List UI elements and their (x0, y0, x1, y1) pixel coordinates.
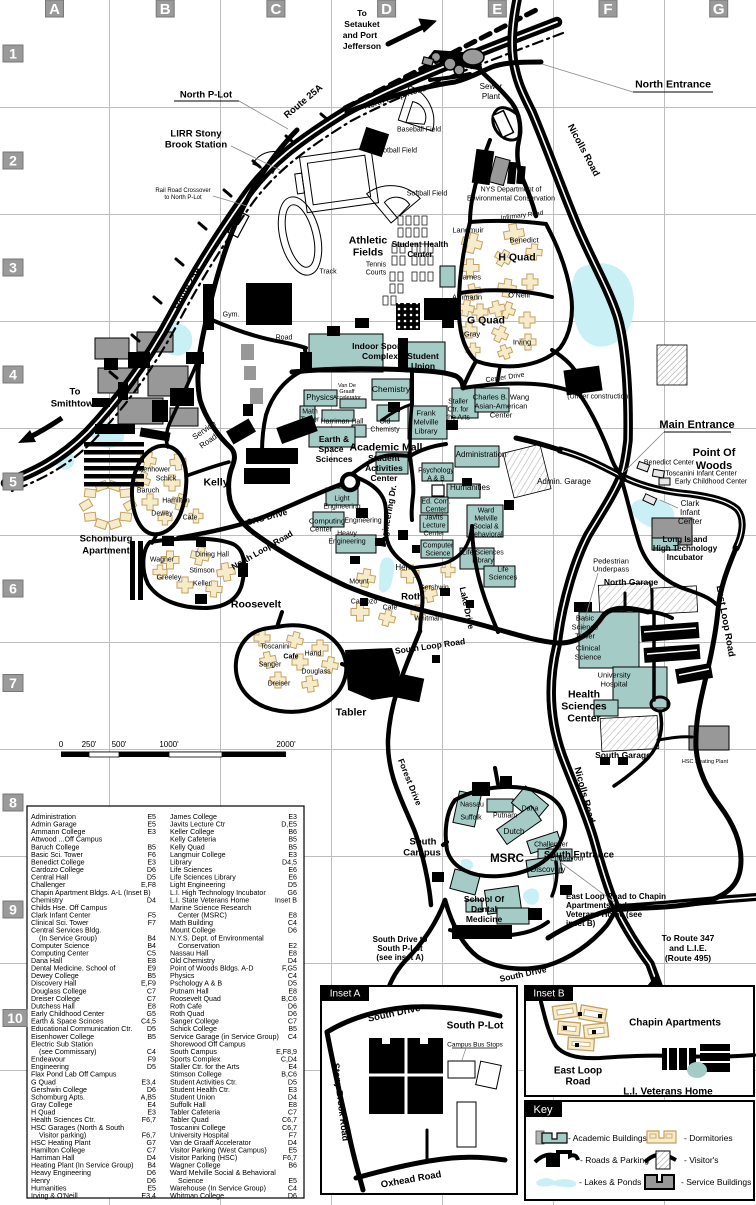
svg-text:Javits: Javits (425, 515, 443, 522)
svg-text:Cafe: Cafe (383, 605, 398, 612)
svg-text:Student: Student (407, 351, 439, 361)
svg-text:North P-Lot: North P-Lot (180, 89, 233, 100)
svg-text:- Dormitories: - Dormitories (684, 1133, 733, 1143)
svg-text:- Academic Buildings: - Academic Buildings (568, 1133, 647, 1143)
svg-text:Fields: Fields (353, 247, 384, 259)
svg-text:Ed. Com.: Ed. Com. (421, 498, 450, 505)
svg-text:Dutch: Dutch (504, 827, 525, 836)
svg-text:To: To (357, 8, 367, 18)
svg-text:E: E (492, 1, 502, 18)
svg-text:Courts: Courts (366, 269, 387, 276)
svg-text:D5: D5 (147, 1063, 156, 1071)
svg-text:Stimson: Stimson (189, 568, 214, 575)
svg-text:Douglass: Douglass (301, 669, 331, 676)
svg-text:Hamilton: Hamilton (162, 497, 190, 504)
svg-text:Light: Light (334, 495, 349, 502)
svg-text:Keller: Keller (193, 581, 212, 588)
svg-text:Langmuir: Langmuir (452, 226, 484, 235)
svg-text:Hospital: Hospital (600, 680, 627, 689)
svg-text:South P-Lot: South P-Lot (447, 1021, 504, 1032)
svg-text:Campus: Campus (403, 847, 440, 858)
svg-text:Plant: Plant (482, 92, 501, 101)
svg-text:O'Neill: O'Neill (508, 291, 530, 300)
svg-text:Mount: Mount (349, 579, 369, 586)
svg-text:Life Sciences: Life Sciences (462, 550, 504, 557)
svg-text:the Arts: the Arts (446, 414, 470, 421)
svg-text:Road: Road (566, 1077, 591, 1088)
svg-text:Tower: Tower (575, 632, 596, 641)
svg-text:Dental: Dental (471, 904, 497, 914)
svg-text:2: 2 (9, 153, 17, 169)
svg-text:B5: B5 (147, 1033, 156, 1041)
svg-text:- Service Buildings: - Service Buildings (681, 1177, 751, 1187)
svg-text:Veterans Home (see: Veterans Home (see (566, 910, 643, 919)
svg-text:LIRR Stony: LIRR Stony (170, 128, 222, 139)
svg-text:Dana: Dana (522, 806, 539, 813)
svg-text:Center: Center (425, 506, 447, 513)
svg-text:Gray: Gray (464, 330, 481, 339)
svg-text:East Loop: East Loop (554, 1066, 602, 1077)
svg-text:5: 5 (9, 474, 17, 490)
svg-text:Student Health: Student Health (392, 240, 449, 249)
svg-text:Life: Life (497, 567, 508, 574)
svg-text:Health: Health (568, 689, 600, 701)
svg-text:Tower: Tower (301, 416, 320, 423)
svg-text:Kelly: Kelly (203, 477, 228, 489)
svg-text:NYS Department of: NYS Department of (481, 186, 542, 193)
svg-text:250': 250' (82, 740, 97, 749)
svg-text:Tabler: Tabler (336, 707, 367, 719)
svg-text:Clinical: Clinical (576, 644, 601, 653)
svg-text:South Entrance: South Entrance (544, 849, 614, 860)
svg-text:inset B): inset B) (566, 919, 596, 928)
svg-text:Setauket: Setauket (344, 19, 380, 29)
svg-text:Football Field: Football Field (375, 147, 417, 154)
svg-text:Gym.: Gym. (223, 311, 240, 318)
svg-text:Union: Union (411, 361, 435, 371)
svg-text:Early Childhood Center: Early Childhood Center (675, 478, 748, 485)
svg-text:Inset B: Inset B (533, 989, 564, 1000)
svg-text:Apartments and: Apartments and (566, 901, 627, 910)
svg-text:Center: Center (407, 250, 432, 259)
svg-text:Lecture: Lecture (422, 523, 445, 530)
svg-text:Academic Mall: Academic Mall (350, 442, 423, 454)
svg-text:Nassau: Nassau (460, 802, 484, 809)
svg-text:Center: Center (423, 531, 445, 538)
svg-text:to North P-Lot: to North P-Lot (164, 195, 202, 201)
svg-text:F7: F7 (148, 919, 156, 927)
svg-text:D: D (381, 1, 392, 18)
svg-text:Greeley: Greeley (157, 575, 182, 582)
svg-text:Inset A: Inset A (330, 989, 361, 1000)
svg-text:Benedict Center: Benedict Center (644, 459, 695, 466)
svg-text:Hand: Hand (305, 651, 322, 658)
svg-text:Athletic: Athletic (349, 235, 388, 247)
svg-text:Campus Bus Stops: Campus Bus Stops (447, 1041, 503, 1048)
svg-text:South: South (410, 836, 437, 847)
svg-text:Dining Hall: Dining Hall (195, 552, 229, 559)
svg-text:Schomburg: Schomburg (80, 533, 133, 544)
svg-text:Cafe: Cafe (283, 654, 298, 661)
svg-text:(Under construction): (Under construction) (567, 393, 630, 400)
svg-text:Behavioral: Behavioral (469, 532, 503, 539)
svg-text:Sewer: Sewer (480, 82, 503, 91)
svg-text:- Visitor's: - Visitor's (684, 1155, 719, 1165)
svg-text:Brook Station: Brook Station (165, 139, 227, 150)
svg-text:Science: Science (575, 653, 602, 662)
svg-text:H Quad: H Quad (498, 252, 535, 264)
svg-text:Whitman College: Whitman College (170, 1192, 224, 1200)
svg-text:Computer: Computer (423, 543, 454, 550)
svg-text:Wagner: Wagner (150, 557, 175, 564)
svg-text:Complex: Complex (362, 351, 398, 361)
svg-text:Student: Student (368, 453, 400, 463)
svg-text:Infant: Infant (680, 508, 701, 517)
svg-text:E3,4: E3,4 (141, 1192, 156, 1200)
svg-text:South P-Lot: South P-Lot (377, 944, 423, 953)
svg-text:Science: Science (572, 623, 599, 632)
svg-text:Administration: Administration (456, 450, 507, 459)
svg-text:North Entrance: North Entrance (635, 79, 711, 91)
svg-text:C4: C4 (288, 1033, 297, 1041)
svg-text:University: University (598, 671, 631, 680)
svg-text:Roosevelt: Roosevelt (231, 599, 282, 611)
svg-text:4: 4 (9, 367, 17, 383)
svg-text:- Roads & Parking: - Roads & Parking (580, 1155, 649, 1165)
svg-text:(Route 495): (Route 495) (665, 953, 711, 963)
svg-text:Irving & O'Neill: Irving & O'Neill (31, 1192, 78, 1200)
svg-text:E3: E3 (147, 828, 156, 836)
svg-text:Asian-American: Asian-American (475, 402, 528, 411)
svg-text:Long Island: Long Island (663, 535, 708, 544)
svg-text:Eisenhower: Eisenhower (134, 466, 171, 473)
svg-text:Engineering: Engineering (328, 539, 365, 546)
svg-text:2000': 2000' (276, 740, 296, 749)
svg-text:Chemistry: Chemistry (372, 384, 411, 394)
svg-text:To Route 347: To Route 347 (662, 933, 715, 943)
svg-text:Schick: Schick (156, 475, 177, 482)
svg-text:Toscanini Infant Center: Toscanini Infant Center (665, 470, 737, 477)
svg-text:MSRC: MSRC (490, 853, 524, 865)
svg-text:A: A (49, 1, 60, 18)
svg-text:Psychology: Psychology (418, 467, 454, 474)
svg-text:1000': 1000' (159, 740, 179, 749)
svg-text:8: 8 (9, 795, 17, 811)
svg-text:Discovery: Discovery (530, 865, 565, 874)
svg-text:Accelerator: Accelerator (333, 395, 361, 401)
svg-text:Suffolk: Suffolk (460, 815, 482, 822)
svg-text:Sciences: Sciences (489, 575, 518, 582)
svg-text:Engineering: Engineering (344, 518, 381, 525)
svg-text:B6: B6 (288, 1162, 297, 1170)
svg-text:Incubator: Incubator (667, 553, 703, 562)
svg-text:D6: D6 (288, 927, 297, 935)
svg-text:Cardozo: Cardozo (351, 599, 378, 606)
svg-text:Main Entrance: Main Entrance (659, 419, 734, 431)
svg-text:C: C (270, 1, 281, 18)
svg-text:Clark: Clark (681, 499, 701, 508)
svg-text:1: 1 (9, 46, 17, 62)
svg-text:3: 3 (9, 260, 17, 276)
svg-text:Old: Old (380, 418, 391, 425)
svg-text:Irving: Irving (513, 338, 531, 347)
svg-text:HSC Heating Plant: HSC Heating Plant (682, 759, 729, 765)
svg-text:Harriman Hall: Harriman Hall (321, 418, 364, 425)
svg-text:Charles B. Wang: Charles B. Wang (473, 393, 529, 402)
svg-text:Dewey: Dewey (151, 511, 173, 518)
svg-text:Social &: Social & (473, 524, 499, 531)
svg-text:Henry: Henry (395, 563, 416, 572)
svg-text:Engineering: Engineering (323, 503, 360, 510)
svg-text:and L.I.E.: and L.I.E. (669, 943, 707, 953)
svg-text:Earth &: Earth & (319, 434, 349, 444)
svg-text:Center: Center (371, 473, 399, 483)
svg-text:Ctr. for: Ctr. for (447, 406, 469, 413)
svg-text:Baruch: Baruch (137, 487, 159, 494)
svg-text:9: 9 (9, 902, 17, 918)
svg-text:Putnam: Putnam (493, 813, 517, 820)
svg-text:- Lakes & Ponds: - Lakes & Ponds (579, 1177, 641, 1187)
svg-text:Center: Center (678, 517, 702, 526)
svg-text:Center: Center (567, 713, 600, 725)
svg-text:Sanger: Sanger (259, 662, 282, 669)
svg-text:Toscanini: Toscanini (260, 644, 290, 651)
svg-text:Science: Science (426, 551, 451, 558)
svg-text:Space: Space (318, 444, 343, 454)
svg-text:Whitman: Whitman (414, 616, 442, 623)
svg-text:Chemisty: Chemisty (370, 426, 400, 433)
svg-text:Sciences: Sciences (561, 701, 607, 713)
svg-text:Dreiser: Dreiser (268, 681, 291, 688)
svg-text:10: 10 (7, 1010, 23, 1026)
svg-text:L.I. Veterans Home: L.I. Veterans Home (623, 1087, 713, 1098)
svg-text:G Quad: G Quad (467, 315, 505, 327)
svg-text:Roth: Roth (401, 591, 423, 602)
svg-text:F6,7: F6,7 (142, 1116, 156, 1124)
svg-text:A & B: A & B (427, 475, 445, 482)
svg-text:Library: Library (415, 427, 438, 436)
svg-text:Underpass: Underpass (593, 565, 630, 574)
svg-text:Melville: Melville (474, 516, 497, 523)
svg-text:Jefferson: Jefferson (343, 41, 381, 51)
svg-text:High Technology: High Technology (653, 544, 718, 553)
svg-text:Staller: Staller (448, 398, 469, 405)
svg-text:7: 7 (9, 675, 17, 691)
svg-text:F: F (603, 1, 612, 18)
svg-text:0: 0 (59, 740, 64, 749)
svg-text:South Garage: South Garage (595, 750, 651, 760)
svg-text:6: 6 (9, 581, 17, 597)
svg-text:Track: Track (319, 268, 337, 275)
svg-text:Tennis: Tennis (366, 261, 387, 268)
svg-text:Chapin Apartments: Chapin Apartments (629, 1018, 721, 1029)
svg-text:Benedict: Benedict (509, 236, 539, 245)
svg-text:Humanities: Humanities (450, 483, 490, 492)
svg-text:and Port: and Port (343, 30, 378, 40)
svg-text:Key: Key (534, 1104, 553, 1116)
svg-text:Math: Math (302, 408, 318, 415)
svg-text:B: B (160, 1, 171, 18)
svg-text:Library: Library (472, 558, 494, 565)
svg-text:Physics: Physics (306, 393, 334, 402)
svg-text:Point Of: Point Of (693, 447, 736, 459)
svg-text:Melville: Melville (413, 418, 438, 427)
svg-text:Environmental Conservation: Environmental Conservation (467, 195, 555, 202)
svg-text:Frank: Frank (416, 409, 435, 418)
svg-text:South Drive to: South Drive to (373, 935, 428, 944)
svg-text:D4: D4 (147, 896, 156, 904)
svg-text:D6: D6 (288, 1192, 297, 1200)
svg-text:To: To (70, 386, 81, 397)
svg-text:G: G (713, 1, 725, 18)
svg-text:Sciences: Sciences (316, 454, 353, 464)
svg-text:Road: Road (276, 334, 293, 341)
svg-text:Admin. Garage: Admin. Garage (537, 477, 591, 486)
svg-text:School Of: School Of (464, 894, 504, 904)
svg-text:Ward: Ward (478, 508, 495, 515)
svg-text:Cafe: Cafe (183, 515, 198, 522)
svg-text:Baseball Field: Baseball Field (397, 126, 441, 133)
svg-text:Center: Center (490, 411, 513, 420)
svg-text:Gershwin: Gershwin (419, 585, 449, 592)
svg-text:Indoor Sports: Indoor Sports (352, 341, 408, 351)
svg-text:Smithtown: Smithtown (51, 398, 100, 409)
svg-text:North Garage: North Garage (604, 577, 659, 587)
svg-text:Challenger: Challenger (534, 842, 569, 849)
svg-text:(see inset A): (see inset A) (376, 953, 424, 962)
svg-text:Rail Road Crossover: Rail Road Crossover (155, 188, 210, 194)
svg-text:East Loop Road to Chapin: East Loop Road to Chapin (566, 892, 666, 901)
svg-text:Basic: Basic (576, 614, 595, 623)
svg-text:Activities: Activities (365, 463, 403, 473)
svg-text:Ammann: Ammann (452, 293, 482, 302)
svg-text:Center: Center (310, 525, 333, 534)
svg-text:Heavy: Heavy (337, 531, 357, 538)
svg-text:James: James (459, 273, 481, 282)
svg-text:Apartment: Apartment (82, 545, 130, 556)
svg-text:500': 500' (112, 740, 127, 749)
svg-text:Softball Field: Softball Field (407, 190, 448, 197)
svg-text:Inset B: Inset B (275, 896, 297, 904)
svg-text:Medicine: Medicine (466, 914, 503, 924)
